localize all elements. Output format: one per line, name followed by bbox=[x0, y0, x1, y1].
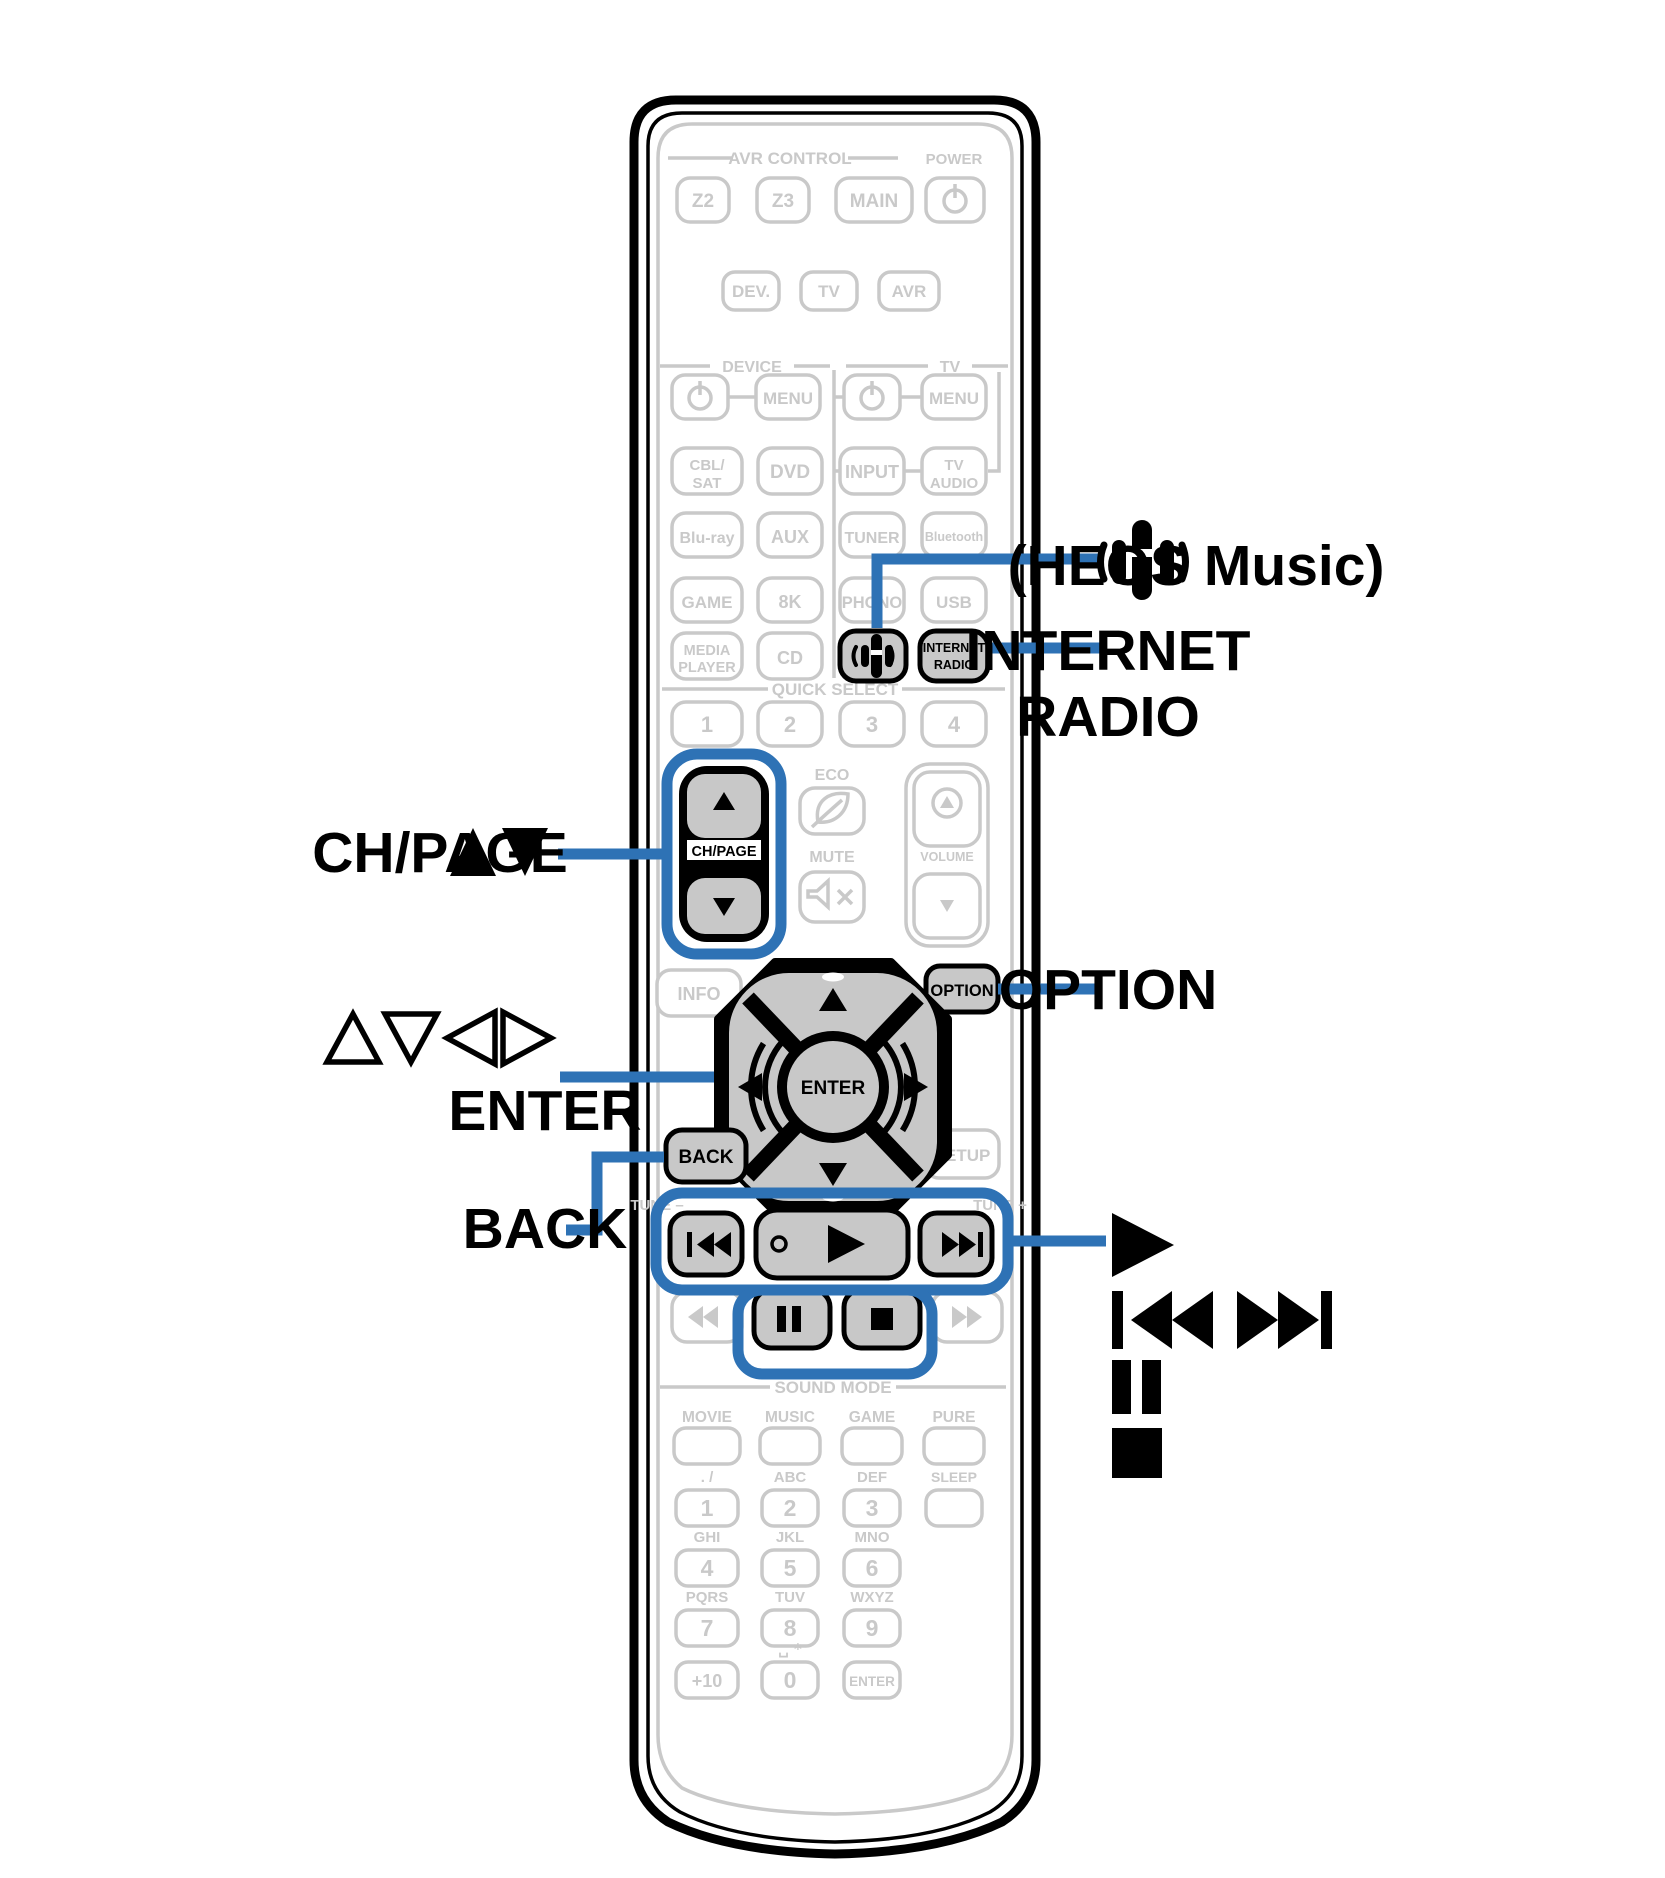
stop-callout-icon bbox=[1112, 1428, 1162, 1478]
main-label: MAIN bbox=[850, 191, 899, 212]
quick-select-1-label: 1 bbox=[701, 712, 713, 737]
avr-control-title: AVR CONTROL bbox=[728, 149, 851, 168]
heos-callout-label: (HEOS Music) bbox=[1008, 534, 1385, 598]
usb-label: USB bbox=[936, 593, 972, 612]
key-9-label: 9 bbox=[866, 1615, 879, 1641]
key-1-label: 1 bbox=[701, 1495, 714, 1521]
cd-label: CD bbox=[777, 648, 803, 668]
option-key-label: OPTION bbox=[930, 982, 993, 1000]
z3-label: Z3 bbox=[772, 191, 794, 212]
dvd-label: DVD bbox=[770, 462, 810, 483]
music-button bbox=[760, 1428, 820, 1464]
key9-letters: WXYZ bbox=[850, 1589, 893, 1606]
device-menu-label: MENU bbox=[763, 389, 813, 408]
key2-letters: ABC bbox=[774, 1469, 807, 1486]
game-mode-title: GAME bbox=[849, 1409, 896, 1426]
key-6-label: 6 bbox=[866, 1555, 879, 1581]
ch-page-key-label: CH/PAGE bbox=[692, 844, 757, 860]
internet-callout-label-2: RADIO bbox=[1016, 685, 1200, 749]
manual-page: AVR CONTROL POWER Z2 Z3 MAIN DEV. TV AVR… bbox=[0, 0, 1665, 1878]
cursor-arrows-icon bbox=[327, 1012, 551, 1064]
sleep-title: SLEEP bbox=[931, 1469, 977, 1485]
key0-symbols: ␣ * bbox=[778, 1640, 802, 1658]
cbl-label: CBL/ bbox=[690, 457, 726, 474]
quick-select-3-label: 3 bbox=[866, 712, 878, 737]
ch-page-rocker: CH/PAGE bbox=[679, 766, 769, 942]
8k-label: 8K bbox=[778, 592, 801, 612]
stop-icon bbox=[871, 1308, 893, 1330]
sleep-button bbox=[926, 1490, 982, 1526]
aux-label: AUX bbox=[771, 527, 809, 547]
z2-label: Z2 bbox=[692, 191, 714, 212]
enter-key-label: ENTER bbox=[801, 1078, 866, 1099]
key4-letters: GHI bbox=[694, 1529, 721, 1546]
cursor-pad: ENTER bbox=[718, 962, 948, 1212]
cursor-up-dot bbox=[822, 973, 844, 982]
game-source-label: GAME bbox=[682, 593, 733, 612]
quick-select-2-label: 2 bbox=[784, 712, 796, 737]
option-callout-label: OPTION bbox=[999, 958, 1218, 1022]
skip-back-callout-icon bbox=[1112, 1291, 1213, 1349]
key1-letters: . / bbox=[701, 1469, 714, 1486]
media-label-2: PLAYER bbox=[678, 660, 736, 676]
keypad-enter-label: ENTER bbox=[849, 1674, 895, 1689]
tv-mode-label: TV bbox=[818, 282, 840, 301]
game-mode-button bbox=[842, 1428, 902, 1464]
tv-menu-label: MENU bbox=[929, 389, 979, 408]
mute-title: MUTE bbox=[809, 849, 855, 866]
music-title: MUSIC bbox=[765, 1409, 815, 1426]
key3-letters: DEF bbox=[857, 1469, 887, 1486]
back-key-label: BACK bbox=[679, 1147, 734, 1168]
movie-button bbox=[674, 1428, 740, 1464]
internet-callout-label-1: INTERNET bbox=[966, 619, 1251, 683]
key-3-label: 3 bbox=[866, 1495, 879, 1521]
bluray-label: Blu-ray bbox=[679, 530, 734, 547]
play-callout-icon bbox=[1112, 1213, 1174, 1277]
key8-letters: TUV bbox=[775, 1589, 805, 1606]
sat-label: SAT bbox=[693, 475, 722, 492]
key6-letters: MNO bbox=[855, 1529, 890, 1546]
sound-mode-title: SOUND MODE bbox=[774, 1378, 891, 1397]
key-4-label: 4 bbox=[701, 1555, 714, 1581]
volume-title: VOLUME bbox=[920, 850, 973, 864]
quick-select-4-label: 4 bbox=[948, 712, 961, 737]
key-2-label: 2 bbox=[784, 1495, 797, 1521]
media-label-1: MEDIA bbox=[684, 643, 731, 659]
pure-button bbox=[924, 1428, 984, 1464]
tv-audio-label-2: AUDIO bbox=[930, 475, 979, 492]
key-8-label: 8 bbox=[784, 1615, 797, 1641]
avr-mode-label: AVR bbox=[892, 282, 927, 301]
info-label: INFO bbox=[678, 984, 721, 1004]
power-title: POWER bbox=[926, 151, 983, 168]
dev-label: DEV. bbox=[732, 282, 770, 301]
plus10-label: +10 bbox=[692, 1671, 723, 1691]
key-7-label: 7 bbox=[701, 1615, 714, 1641]
pause-callout-icon bbox=[1112, 1360, 1161, 1414]
key-0-label: 0 bbox=[784, 1667, 797, 1693]
key-5-label: 5 bbox=[784, 1555, 797, 1581]
key7-letters: PQRS bbox=[686, 1589, 729, 1606]
tv-audio-label-1: TV bbox=[944, 457, 963, 474]
enter-callout-label: ENTER bbox=[448, 1079, 641, 1143]
input-label: INPUT bbox=[845, 462, 899, 482]
remote-diagram: AVR CONTROL POWER Z2 Z3 MAIN DEV. TV AVR… bbox=[0, 0, 1665, 1878]
key5-letters: JKL bbox=[776, 1529, 804, 1546]
back-callout-label: BACK bbox=[463, 1197, 628, 1261]
tuner-label: TUNER bbox=[844, 530, 900, 547]
bluetooth-label: Bluetooth bbox=[925, 530, 983, 544]
movie-title: MOVIE bbox=[682, 1409, 732, 1426]
skip-forward-callout-icon bbox=[1237, 1291, 1332, 1349]
pure-title: PURE bbox=[932, 1409, 975, 1426]
eco-title: ECO bbox=[815, 767, 850, 784]
